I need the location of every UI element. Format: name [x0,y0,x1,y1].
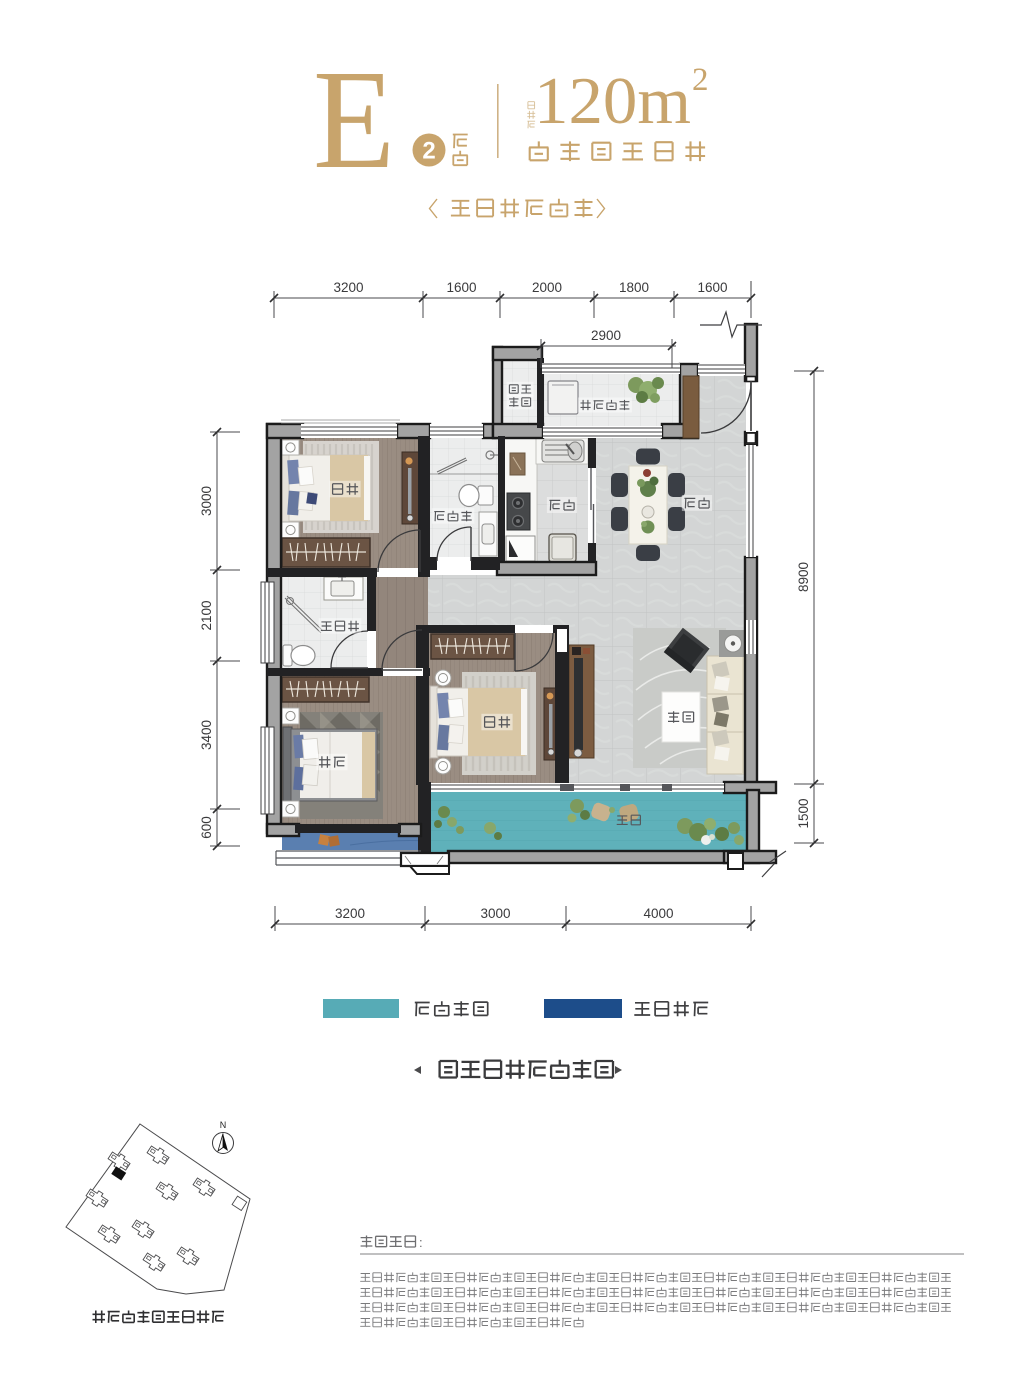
svg-text:4000: 4000 [643,906,673,921]
svg-text:120m: 120m [534,64,691,138]
svg-text:3000: 3000 [199,486,214,516]
svg-text:2900: 2900 [591,328,621,343]
svg-text:1500: 1500 [796,798,811,828]
svg-text:3200: 3200 [333,280,363,295]
svg-text:2100: 2100 [199,600,214,630]
svg-text:N: N [220,1120,227,1130]
svg-text:8900: 8900 [796,562,811,592]
svg-text:1600: 1600 [446,280,476,295]
svg-text:3000: 3000 [480,906,510,921]
svg-text::: : [419,1235,423,1250]
svg-text:2: 2 [422,138,435,165]
svg-text:600: 600 [199,816,214,839]
svg-text:E: E [313,40,395,198]
svg-text:3200: 3200 [335,906,365,921]
svg-text:1600: 1600 [697,280,727,295]
svg-text:1800: 1800 [619,280,649,295]
svg-text:3400: 3400 [199,720,214,750]
svg-text:2000: 2000 [532,280,562,295]
svg-text:2: 2 [692,62,709,98]
